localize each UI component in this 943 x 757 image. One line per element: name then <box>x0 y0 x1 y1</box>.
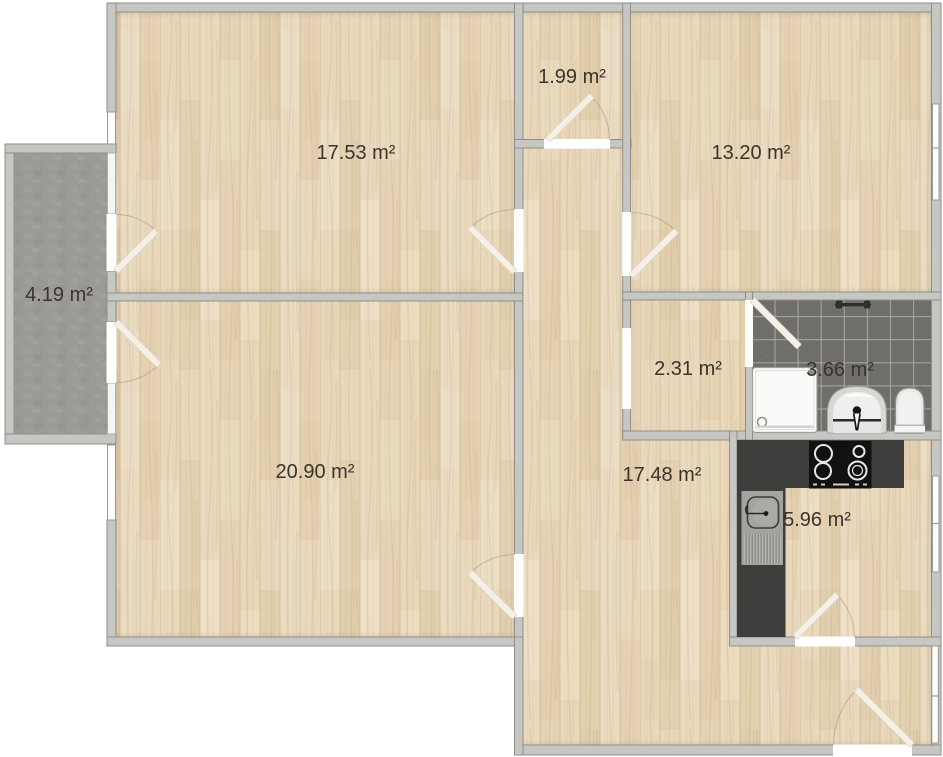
svg-text:2.31 m²: 2.31 m² <box>654 358 722 380</box>
svg-text:1.99 m²: 1.99 m² <box>538 66 606 88</box>
svg-text:3.66 m²: 3.66 m² <box>806 359 874 381</box>
svg-text:13.20 m²: 13.20 m² <box>712 142 791 164</box>
svg-text:17.53 m²: 17.53 m² <box>317 142 396 164</box>
svg-text:4.19 m²: 4.19 m² <box>25 284 93 306</box>
svg-text:5.96 m²: 5.96 m² <box>783 509 851 531</box>
svg-text:20.90 m²: 20.90 m² <box>276 461 355 483</box>
svg-text:17.48 m²: 17.48 m² <box>623 464 702 486</box>
